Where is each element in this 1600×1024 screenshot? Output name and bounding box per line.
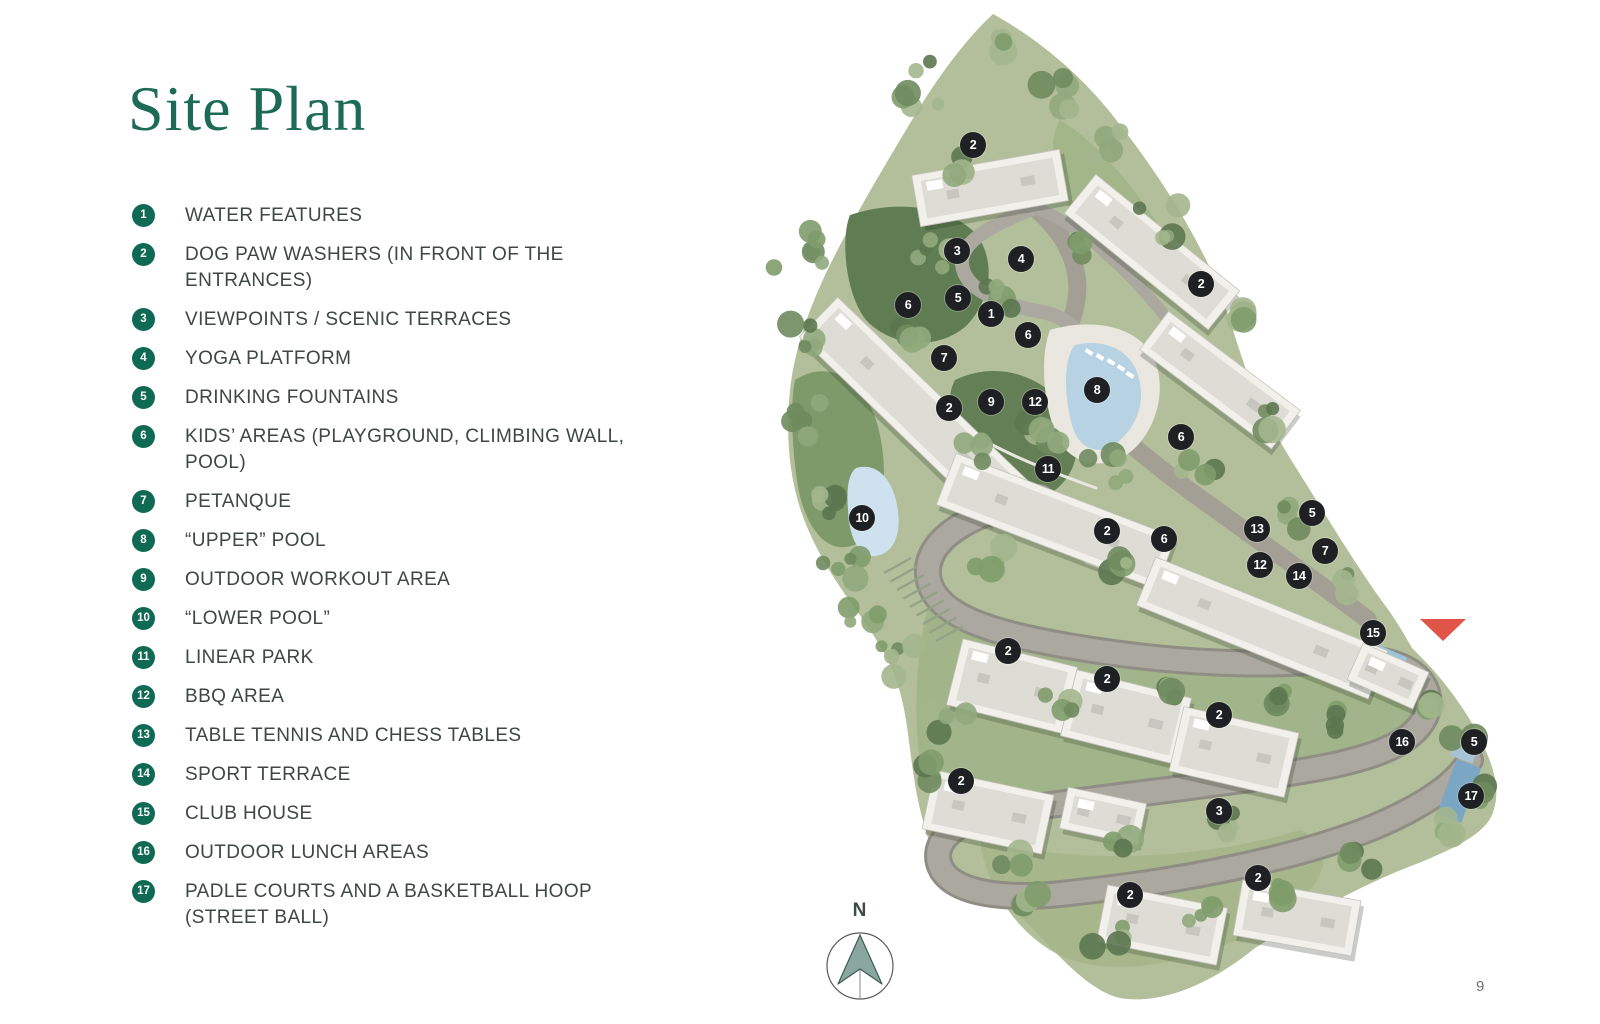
map-marker-11: 11 [1035, 456, 1061, 482]
map-marker-2: 2 [1094, 518, 1120, 544]
map-marker-10: 10 [849, 505, 875, 531]
map-marker-7: 7 [931, 345, 957, 371]
map-marker-2: 2 [960, 132, 986, 158]
map-marker-14: 14 [1286, 563, 1312, 589]
map-marker-12: 12 [1247, 552, 1273, 578]
map-marker-5: 5 [945, 285, 971, 311]
compass: N [812, 900, 908, 1011]
map-marker-2: 2 [1206, 702, 1232, 728]
map-marker-8: 8 [1084, 377, 1110, 403]
map-marker-6: 6 [1168, 424, 1194, 450]
map-marker-6: 6 [895, 292, 921, 318]
map-marker-3: 3 [1206, 798, 1232, 824]
map-marker-16: 16 [1389, 729, 1415, 755]
location-pointer-icon [1420, 619, 1466, 641]
map-marker-7: 7 [1312, 538, 1338, 564]
map-markers-layer: 2342561678912261151013267121415222165217… [0, 0, 1600, 1024]
map-marker-9: 9 [978, 389, 1004, 415]
map-marker-2: 2 [948, 768, 974, 794]
map-marker-1: 1 [978, 301, 1004, 327]
map-marker-6: 6 [1015, 322, 1041, 348]
map-marker-5: 5 [1299, 500, 1325, 526]
map-marker-15: 15 [1360, 620, 1386, 646]
map-marker-17: 17 [1458, 783, 1484, 809]
map-marker-2: 2 [1094, 666, 1120, 692]
map-marker-4: 4 [1008, 246, 1034, 272]
map-marker-12: 12 [1022, 389, 1048, 415]
compass-north-label: N [812, 900, 908, 922]
compass-arrow-icon [812, 922, 908, 1006]
map-marker-13: 13 [1244, 516, 1270, 542]
map-marker-5: 5 [1461, 729, 1487, 755]
map-marker-3: 3 [944, 238, 970, 264]
map-marker-2: 2 [995, 638, 1021, 664]
map-marker-2: 2 [936, 395, 962, 421]
map-marker-2: 2 [1245, 865, 1271, 891]
map-marker-2: 2 [1117, 882, 1143, 908]
map-marker-6: 6 [1151, 526, 1177, 552]
map-marker-2: 2 [1188, 271, 1214, 297]
page-number: 9 [1476, 978, 1484, 995]
